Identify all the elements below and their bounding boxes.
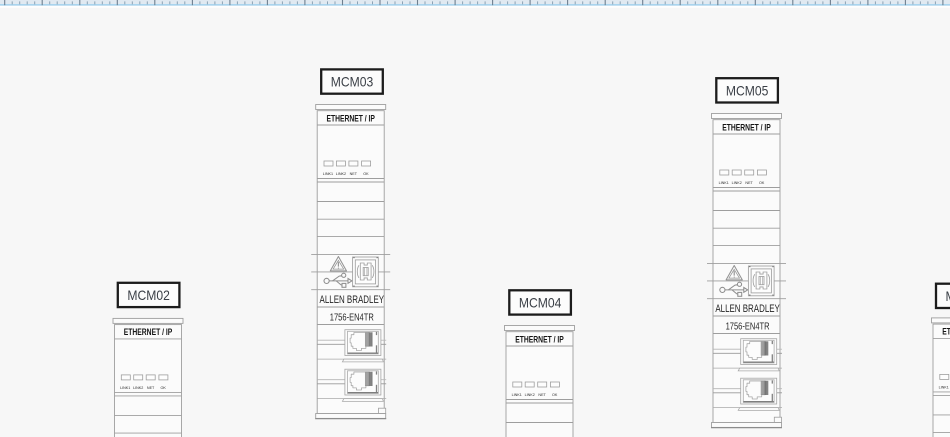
svg-text:MCM02: MCM02	[127, 288, 170, 303]
svg-text:MCM03: MCM03	[331, 75, 374, 90]
svg-text:MCM04: MCM04	[519, 296, 562, 311]
svg-text:MCM06: MCM06	[946, 289, 950, 304]
svg-text:MCM05: MCM05	[726, 84, 769, 99]
